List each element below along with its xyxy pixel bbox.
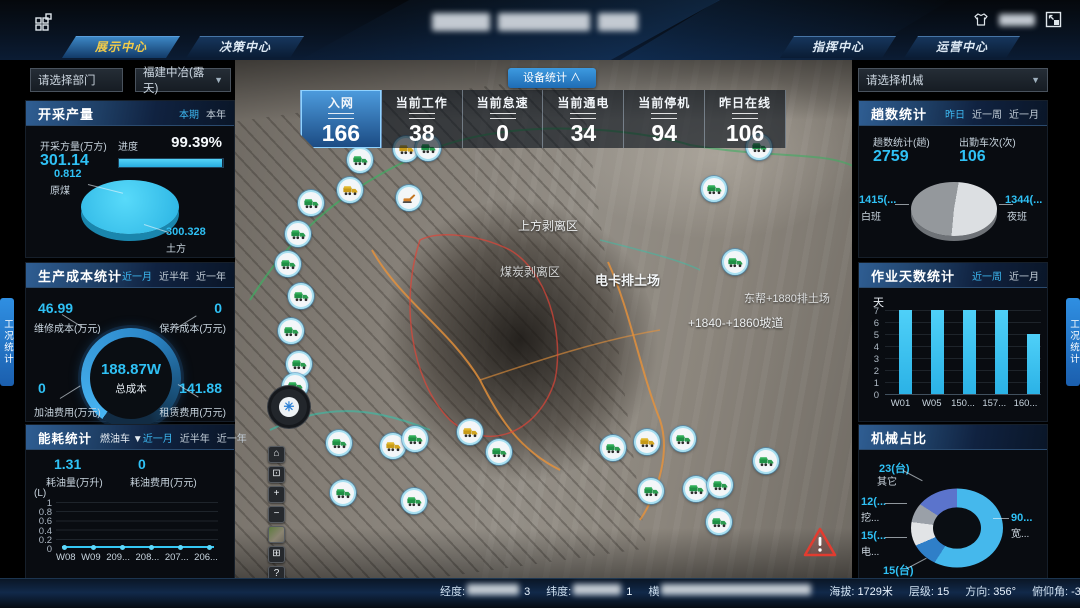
department-select[interactable]: 请选择部门	[30, 68, 123, 92]
donut-label-value: 15(...	[861, 530, 886, 542]
stat-label: 当前通电	[557, 94, 609, 111]
line-series	[62, 546, 214, 548]
energy-line-chart	[56, 502, 218, 548]
panel-tab[interactable]: 近一月	[143, 430, 173, 445]
device-stats-bar: 入网166当前工作38当前怠速0当前通电34当前停机94昨日在线106	[300, 90, 786, 148]
donut-label-name: 其它	[877, 473, 897, 488]
stat-underline	[490, 113, 516, 119]
truck-marker-green[interactable]	[701, 176, 727, 202]
stat-label: 入网	[328, 94, 354, 111]
truck-marker-green[interactable]	[707, 472, 733, 498]
progress-value: 99.39%	[171, 134, 222, 151]
redacted-value	[467, 584, 519, 595]
data-point	[207, 545, 212, 550]
production-pie-chart	[81, 180, 179, 234]
callout-line	[999, 204, 1013, 205]
truck-marker-yellow[interactable]	[634, 429, 660, 455]
trips-panel: 趟数统计 昨日近一周近一月 趟数统计(趟) 2759 出勤车次(次) 106 1…	[858, 100, 1048, 258]
chevron-down-icon: ▼	[214, 75, 223, 85]
trips-count-label: 趟数统计(趟)	[873, 134, 930, 149]
x-tick: 209...	[106, 552, 130, 563]
bar-W05	[931, 310, 944, 394]
stat-underline	[651, 113, 677, 119]
truck-marker-green[interactable]	[638, 478, 664, 504]
volume-label: 开采方量(万方)	[40, 138, 107, 153]
redacted-value	[661, 584, 811, 595]
progress-bar	[118, 158, 224, 168]
bar-W01	[899, 310, 912, 394]
x-tick: W05	[916, 398, 947, 409]
panel-tab[interactable]: 近半年	[159, 268, 189, 283]
shift-count-value: 106	[959, 148, 986, 166]
workdays-bar-chart	[885, 310, 1041, 395]
y-tick: 6	[865, 318, 879, 329]
callout-line	[895, 204, 909, 205]
corner-label: 维修成本(万元)	[34, 320, 101, 335]
zoom-in-tool-icon[interactable]: +	[268, 486, 285, 503]
stat-value: 34	[571, 121, 597, 145]
pie-slice-label: 土方	[166, 240, 186, 255]
total-cost-value: 188.87W	[101, 361, 161, 378]
donut-label-value: 90...	[1011, 512, 1032, 524]
donut-label-name: 宽...	[1011, 525, 1029, 540]
app-title-redacted	[432, 9, 644, 35]
stat-value: 166	[322, 121, 360, 145]
x-tick: 207...	[165, 552, 189, 563]
device-stat-card[interactable]: 入网166	[300, 90, 382, 148]
truck-marker-green[interactable]	[326, 430, 352, 456]
truck-marker-green[interactable]	[486, 439, 512, 465]
panel-tab[interactable]: 近一月	[1009, 268, 1039, 283]
panel-title: 开采产量	[38, 104, 94, 123]
dashboard-screen: 上方剥离区煤炭剥离区电卡排土场东帮+1880排土场+1840-+1860坡道 ✳…	[0, 0, 1080, 608]
panel-title: 机械占比	[871, 428, 927, 447]
status-item: 方向:356°	[965, 583, 1016, 599]
donut-label-value: 12(...	[861, 496, 886, 508]
production-tabs: 本期本年	[179, 106, 226, 121]
truck-marker-green[interactable]	[275, 251, 301, 277]
corner-label: 保养成本(万元)	[159, 320, 226, 335]
department-select-label: 请选择部门	[38, 72, 96, 88]
trips-pie-chart	[911, 182, 997, 236]
bar-150...	[963, 310, 976, 394]
truck-marker-green[interactable]	[600, 435, 626, 461]
device-stat-card[interactable]: 当前停机94	[624, 90, 705, 148]
truck-marker-green[interactable]	[278, 318, 304, 344]
donut-label-name: 电...	[861, 543, 879, 558]
panel-tab[interactable]: 近一周	[972, 268, 1002, 283]
pie-slice-value: 300.328	[166, 226, 206, 238]
top-header: 展示中心决策中心指挥中心运营中心	[0, 0, 1080, 60]
status-item: 横	[648, 583, 813, 599]
status-item: 海拔:1729米	[829, 583, 893, 599]
pie-slice-value: 0.812	[54, 168, 82, 180]
truck-marker-yellow[interactable]	[457, 419, 483, 445]
truck-marker-green[interactable]	[402, 426, 428, 452]
data-point	[178, 545, 183, 550]
stat-value: 94	[651, 121, 677, 145]
production-panel: 开采产量 本期本年 开采方量(万方) 301.14 进度 99.39% 0.81…	[25, 100, 235, 258]
status-item: 纬度:1	[546, 583, 632, 599]
status-item: 层级:15	[909, 583, 949, 599]
org-select-label: 福建中冶(露天)	[143, 64, 214, 96]
nav-tab-2[interactable]: 决策中心	[186, 36, 304, 58]
pie-slice-value: 1415(...	[859, 194, 896, 206]
cost-panel: 生产成本统计 近一月近半年近一年 188.87W 总成本 46.99 维修成本(…	[25, 262, 235, 422]
device-stat-card[interactable]: 昨日在线106	[705, 90, 786, 148]
side-tab-label: 工况统计	[0, 319, 14, 365]
panel-tab[interactable]: 近一月	[122, 268, 152, 283]
side-tab-label: 工况统计	[1066, 319, 1080, 365]
pie-slice-label: 夜班	[1007, 208, 1027, 223]
stat-underline	[328, 113, 354, 119]
skin-theme-icon[interactable]	[973, 12, 989, 28]
compass-control[interactable]: ✳	[268, 386, 310, 428]
truck-marker-green[interactable]	[347, 147, 373, 173]
pie-slice-label: 白班	[861, 208, 881, 223]
nav-tab-4[interactable]: 运营中心	[904, 36, 1020, 58]
panel-tab[interactable]: 本年	[206, 106, 226, 121]
corner-value: 46.99	[38, 300, 73, 316]
corner-value: 0	[214, 300, 222, 316]
trips-count-value: 2759	[873, 148, 909, 166]
alarm-warning-icon[interactable]	[803, 527, 837, 557]
x-axis-labels: W01W05150...157...160...	[885, 398, 1041, 409]
data-point	[120, 545, 125, 550]
status-item: 经度:3	[440, 583, 530, 599]
stat-label: 昨日在线	[719, 94, 771, 111]
apps-grid-icon[interactable]	[34, 12, 54, 32]
truck-marker-green[interactable]	[330, 480, 356, 506]
shift-count-label: 出勤车次(次)	[959, 134, 1016, 149]
map-area-label: 东帮+1880排土场	[744, 290, 830, 306]
fuel-cost-value: 0	[138, 456, 146, 472]
energy-panel: 能耗统计 燃油车 ▼ 近一月近半年近一年 1.31 耗油量(万升) 0 耗油费用…	[25, 424, 235, 585]
panel-title: 趟数统计	[871, 104, 927, 123]
stat-value: 38	[409, 121, 435, 145]
y-tick: 5	[865, 330, 879, 341]
device-stats-toggle[interactable]: 设备统计 ∧	[508, 68, 596, 88]
panel-tab[interactable]: 昨日	[945, 106, 965, 121]
split-view-tool-icon[interactable]: ⊞	[268, 546, 285, 563]
panel-tab[interactable]: 近一年	[196, 268, 226, 283]
x-tick: 208...	[136, 552, 160, 563]
extent-tool-icon[interactable]: ⊡	[268, 466, 285, 483]
y-tick: 3	[865, 354, 879, 365]
x-tick: 157...	[979, 398, 1010, 409]
device-stat-card[interactable]: 当前工作38	[382, 90, 463, 148]
truck-marker-green[interactable]	[683, 476, 709, 502]
x-tick: 150...	[948, 398, 979, 409]
x-axis-labels: W08W09209...208...207...206...	[56, 552, 218, 563]
y-tick: 0	[32, 544, 52, 555]
connector-line	[60, 385, 81, 399]
fuel-volume-label: 耗油量(万升)	[46, 474, 103, 489]
panel-tab[interactable]: 近半年	[180, 430, 210, 445]
panel-tab[interactable]: 近一周	[972, 106, 1002, 121]
panel-tab[interactable]: 近一月	[1009, 106, 1039, 121]
machinery-panel: 机械占比 23(台) 其它 12(... 挖... 15(... 电... 15…	[858, 424, 1048, 585]
vehicle-type-select[interactable]: 燃油车 ▼	[100, 430, 143, 445]
callout-line	[993, 518, 1009, 519]
map-area-label: +1840-+1860坡道	[688, 314, 783, 331]
username-redacted	[999, 14, 1035, 26]
fuel-cost-label: 耗油费用(万元)	[130, 474, 197, 489]
truck-marker-green[interactable]	[288, 283, 314, 309]
x-tick: 206...	[194, 552, 218, 563]
progress-label: 进度	[118, 138, 138, 153]
workdays-panel: 作业天数统计 近一周近一月 天 76543210 W01W05150...157…	[858, 262, 1048, 422]
stat-underline	[409, 113, 435, 119]
y-tick: 4	[865, 342, 879, 353]
truck-marker-green[interactable]	[722, 249, 748, 275]
map-area-label: 煤炭剥离区	[500, 263, 560, 280]
device-stat-card[interactable]: 当前怠速0	[463, 90, 544, 148]
x-tick: W09	[81, 552, 101, 563]
x-tick: W08	[56, 552, 76, 563]
truck-marker-green[interactable]	[706, 509, 732, 535]
truck-marker-yellow[interactable]	[337, 177, 363, 203]
stat-label: 当前怠速	[477, 94, 529, 111]
map-shade-bottom	[235, 528, 860, 578]
corner-label: 租赁费用(万元)	[159, 404, 226, 419]
cost-tabs: 近一月近半年近一年	[122, 268, 226, 283]
x-tick: W01	[885, 398, 916, 409]
machinery-donut-chart	[911, 488, 1003, 567]
panel-title: 生产成本统计	[38, 266, 122, 285]
basemap-tool-icon[interactable]	[268, 526, 285, 543]
total-cost-label: 总成本	[115, 381, 147, 396]
left-condition-stats-tab[interactable]: 工况统计	[0, 298, 14, 386]
truck-marker-green[interactable]	[285, 221, 311, 247]
y-tick: 2	[865, 366, 879, 377]
pie-slice-label: 原煤	[50, 182, 70, 197]
truck-marker-green[interactable]	[298, 190, 324, 216]
redacted-value	[573, 584, 621, 595]
y-tick: 0	[865, 390, 879, 401]
data-point	[149, 545, 154, 550]
chevron-down-icon: ▼	[1031, 75, 1040, 85]
panel-title: 作业天数统计	[871, 266, 955, 285]
stat-label: 当前工作	[396, 94, 448, 111]
energy-tabs: 近一月近半年近一年	[143, 430, 247, 445]
stat-underline	[732, 113, 758, 119]
bar-157...	[995, 310, 1008, 394]
data-point	[62, 545, 67, 550]
progress-bar-fill	[119, 159, 222, 167]
stat-label: 当前停机	[638, 94, 690, 111]
right-condition-stats-tab[interactable]: 工况统计	[1066, 298, 1080, 386]
donut-label-name: 挖...	[861, 509, 879, 524]
y-tick: 7	[865, 306, 879, 317]
fullscreen-icon[interactable]	[1045, 11, 1062, 28]
machine-select-label: 请选择机械	[866, 72, 924, 88]
stat-value: 106	[726, 121, 764, 145]
truck-marker-green[interactable]	[401, 488, 427, 514]
panel-tab[interactable]: 本期	[179, 106, 199, 121]
corner-value: 0	[38, 380, 46, 396]
nav-tab-1[interactable]: 展示中心	[62, 36, 180, 58]
status-item: 俯仰角:-37°	[1032, 583, 1080, 599]
truck-marker-green[interactable]	[670, 426, 696, 452]
org-select[interactable]: 福建中冶(露天) ▼	[135, 68, 231, 92]
compass-icon: ✳	[279, 397, 299, 417]
y-tick: 1	[865, 378, 879, 389]
panel-tab[interactable]: 近一年	[217, 430, 247, 445]
fuel-volume-value: 1.31	[54, 456, 81, 472]
excavator-marker[interactable]	[396, 185, 422, 211]
stat-value: 0	[496, 121, 509, 145]
callout-line	[885, 537, 907, 538]
x-tick: 160...	[1010, 398, 1041, 409]
data-point	[91, 545, 96, 550]
nav-tab-3[interactable]: 指挥中心	[780, 36, 896, 58]
machine-select[interactable]: 请选择机械 ▼	[858, 68, 1048, 92]
bar-160...	[1027, 334, 1040, 394]
trips-tabs: 昨日近一周近一月	[945, 106, 1039, 121]
corner-label: 加油费用(万元)	[34, 404, 101, 419]
workdays-tabs: 近一周近一月	[972, 268, 1039, 283]
status-bar: 经度:3纬度:1横海拔:1729米层级:15方向:356°俯仰角:-37°视高:…	[0, 578, 1080, 608]
map-area-label: 电卡排土场	[595, 270, 660, 289]
zoom-out-tool-icon[interactable]: −	[268, 506, 285, 523]
callout-line	[885, 503, 907, 504]
stat-underline	[570, 113, 596, 119]
device-stat-card[interactable]: 当前通电34	[543, 90, 624, 148]
panel-title: 能耗统计	[38, 428, 92, 447]
map-area-label: 上方剥离区	[518, 217, 578, 234]
truck-marker-green[interactable]	[753, 448, 779, 474]
home-tool-icon[interactable]: ⌂	[268, 446, 285, 463]
